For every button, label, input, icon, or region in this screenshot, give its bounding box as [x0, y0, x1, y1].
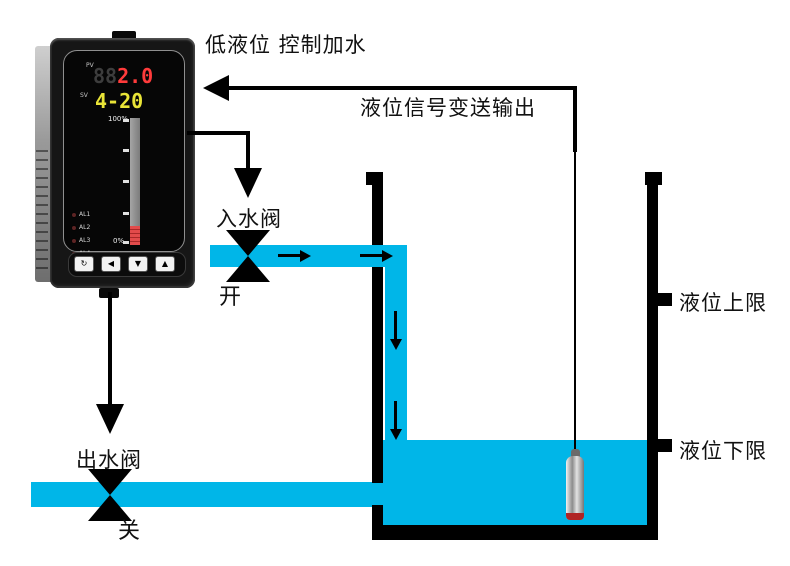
inlet-control-line-vertical [246, 131, 250, 170]
sensor-cable [574, 152, 576, 452]
down-button-icon: ▼ [135, 260, 141, 268]
al2-led [72, 226, 76, 230]
al3-label: AL3 [79, 237, 90, 244]
al1-led [72, 213, 76, 217]
bargraph-tick-75 [123, 149, 129, 152]
sensor-tip [566, 513, 584, 520]
alarm-led-row: AL2 [72, 224, 90, 231]
upper-limit-label: 液位上限 [679, 287, 767, 317]
outlet-control-line-vertical [108, 292, 112, 405]
inlet-valve-upper [226, 230, 270, 256]
pv-display: 882.0 [93, 64, 153, 88]
up-button[interactable]: ▲ [155, 256, 175, 272]
down-button[interactable]: ▼ [128, 256, 148, 272]
bargraph-dash-top [123, 119, 129, 122]
shift-button-icon: ◀ [108, 260, 114, 268]
flow-arrow-down-head-icon [390, 339, 402, 350]
sv-value: 4-20 [95, 89, 143, 113]
inlet-control-line-horizontal [187, 131, 250, 135]
flow-arrow-right-head-icon [300, 250, 311, 262]
level-sensor [566, 456, 584, 520]
inlet-valve-state: 开 [219, 279, 242, 311]
diagram-canvas: PV 882.0 SV 4-20 100% 0% AL1 AL2 AL3 [0, 0, 790, 566]
signal-output-label: 液位信号变送输出 [360, 92, 536, 122]
inlet-valve-label: 入水阀 [216, 203, 282, 233]
set-button[interactable]: ↻ [74, 256, 94, 272]
lower-limit-label: 液位下限 [679, 435, 767, 465]
alarm-led-row: AL1 [72, 211, 90, 218]
up-button-icon: ▲ [162, 260, 168, 268]
set-button-icon: ↻ [81, 260, 88, 268]
lower-limit-marker [658, 439, 672, 452]
signal-line-vertical [573, 86, 577, 152]
tank-bottom-wall [372, 525, 658, 540]
outlet-pipe [31, 482, 383, 507]
flow-arrow-right-head-icon [382, 250, 393, 262]
bargraph-fill [130, 226, 140, 245]
al3-led [72, 239, 76, 243]
shift-button[interactable]: ◀ [101, 256, 121, 272]
inlet-control-arrowhead-icon [234, 168, 262, 198]
signal-line-horizontal [228, 86, 577, 90]
al2-label: AL2 [79, 224, 90, 231]
bargraph-track [130, 118, 140, 245]
outlet-valve-state: 关 [118, 513, 141, 545]
outlet-valve-upper [88, 469, 132, 495]
sv-display: 4-20 [95, 89, 143, 113]
tank-left-wall [372, 267, 383, 483]
tank-right-wall [647, 172, 658, 538]
alarm-led-row: AL3 [72, 237, 90, 244]
bargraph-tick-50 [123, 180, 129, 183]
bargraph-dash-bottom [123, 241, 129, 244]
flow-arrow-down-icon [394, 401, 397, 431]
flow-arrow-right-icon [360, 254, 384, 257]
upper-limit-marker [658, 293, 672, 306]
bargraph-tick-25 [123, 212, 129, 215]
flow-arrow-right-icon [278, 254, 302, 257]
top-caption: 低液位 控制加水 [205, 29, 367, 59]
tank-water [383, 440, 647, 525]
pv-ghost-digits: 88 [93, 64, 117, 88]
flow-arrow-down-icon [394, 311, 397, 341]
pv-value: 2.0 [117, 64, 153, 88]
vent-lines [36, 150, 48, 272]
flow-arrow-down-head-icon [390, 429, 402, 440]
sv-label: SV [80, 92, 88, 99]
signal-arrowhead-icon [203, 75, 229, 101]
tank-left-wall [372, 172, 383, 245]
al1-label: AL1 [79, 211, 90, 218]
outlet-control-arrowhead-icon [96, 404, 124, 434]
